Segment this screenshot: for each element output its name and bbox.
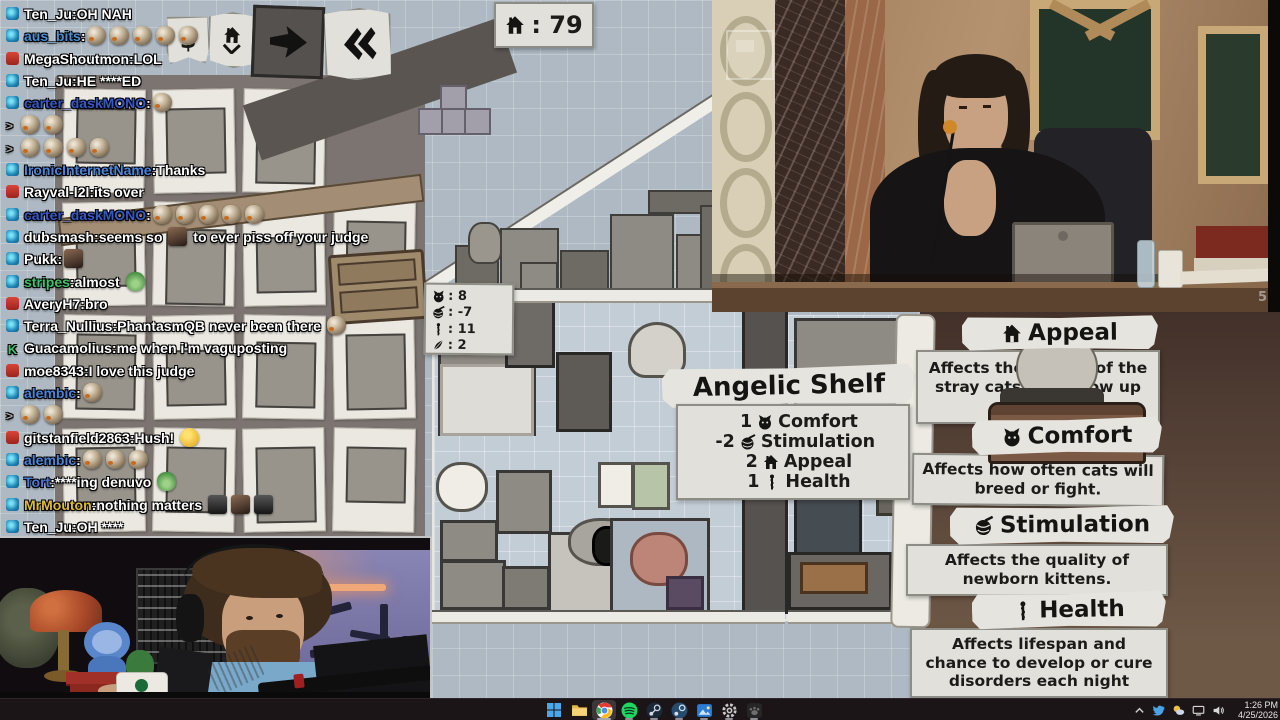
chat-username[interactable]: dubsmash bbox=[24, 229, 94, 245]
streamer-eye bbox=[246, 616, 253, 620]
chat-username[interactable]: AveryH7 bbox=[24, 296, 80, 312]
sub-badge-icon bbox=[6, 275, 19, 288]
chat-message: Ten_Ju:HE ****ED bbox=[6, 70, 436, 92]
username-separator: : bbox=[57, 251, 62, 267]
wood-drawer bbox=[800, 562, 868, 594]
windows-taskbar: 1:26 PM 4/25/2026 bbox=[0, 698, 1280, 720]
chrome-taskbar-icon[interactable] bbox=[592, 700, 616, 720]
info-panel-desc-stimulation: Affects the quality of newborn kittens. bbox=[906, 544, 1168, 596]
appeal-counter: : 79 bbox=[494, 2, 594, 48]
bird-emote-icon[interactable] bbox=[179, 26, 198, 45]
stat-row-feather: : 2 bbox=[432, 337, 506, 354]
marble-wall-panel bbox=[1030, 0, 1160, 140]
chat-username[interactable]: IronicInternetName bbox=[24, 162, 152, 178]
frog-emote-icon[interactable] bbox=[157, 472, 176, 491]
steam-taskbar-icon[interactable] bbox=[642, 700, 666, 720]
speaker-icon[interactable] bbox=[1212, 704, 1225, 717]
chat-message: Rayval-l2l:its over bbox=[6, 181, 436, 203]
room-floor bbox=[430, 610, 785, 624]
continuation-prefix: > bbox=[6, 409, 13, 423]
blue-plush-face bbox=[92, 630, 122, 654]
house-icon bbox=[763, 454, 779, 470]
mod-red-badge-icon bbox=[6, 431, 19, 444]
bird-emote-icon[interactable] bbox=[106, 450, 125, 469]
sub-badge-icon bbox=[6, 163, 19, 176]
yarn-icon bbox=[740, 434, 756, 450]
chat-message: dubsmash:seems so to ever piss off your … bbox=[6, 226, 436, 248]
chat-username[interactable]: Terra_Nullius bbox=[24, 318, 112, 334]
chat-username[interactable]: MegaShoutmon bbox=[24, 51, 129, 67]
chat-username[interactable]: Ten_Ju bbox=[24, 519, 72, 535]
chat-message: MegaShoutmon:LOL bbox=[6, 48, 436, 70]
chat-message: > bbox=[6, 404, 436, 426]
judge-camera-feed: 5 bbox=[712, 0, 1280, 312]
mod-red-badge-icon bbox=[6, 185, 19, 198]
chat-message: carter_daskMONO: bbox=[6, 92, 436, 114]
chat-message: Ten_Ju:OH NAH bbox=[6, 3, 436, 25]
lamp-stand bbox=[58, 630, 69, 674]
channel-watermark: 5 bbox=[1258, 290, 1267, 305]
hush-emote-icon[interactable] bbox=[180, 428, 199, 447]
judge-hands bbox=[944, 160, 996, 236]
bird-emote-icon[interactable] bbox=[90, 138, 109, 157]
info-panel-title-stimulation: Stimulation bbox=[950, 505, 1174, 545]
chat-username[interactable]: aus_bits bbox=[24, 28, 81, 44]
dark-emote-icon[interactable] bbox=[254, 495, 273, 514]
bird-emote-icon[interactable] bbox=[21, 138, 40, 157]
tiffany-lamp-dome bbox=[30, 590, 102, 632]
chat-message: Pukk: bbox=[6, 248, 436, 270]
photo-emote-icon[interactable] bbox=[168, 227, 187, 246]
chat-text: almost bbox=[75, 274, 124, 290]
sub-badge-icon bbox=[6, 520, 19, 533]
paw-app-taskbar-icon[interactable] bbox=[742, 700, 766, 720]
chat-username[interactable]: Tort bbox=[24, 474, 50, 490]
ivory-column bbox=[712, 0, 778, 312]
tooltip-stat-appeal: 2Appeal bbox=[678, 452, 908, 472]
appeal-counter-value: : 79 bbox=[531, 11, 582, 39]
chat-text: PhantasmQB never been there bbox=[117, 318, 325, 334]
chat-message: IronicInternetName:Thanks bbox=[6, 159, 436, 181]
boom-arm-ring bbox=[293, 674, 304, 689]
bird-emote-icon[interactable] bbox=[21, 115, 40, 134]
yarn-icon bbox=[974, 516, 994, 536]
streamer-camera-feed bbox=[0, 536, 432, 700]
sub-badge-icon bbox=[6, 498, 19, 511]
judge-hair-top bbox=[934, 54, 1018, 98]
info-panel-title-appeal: Appeal bbox=[962, 315, 1158, 351]
chat-username[interactable]: stripes bbox=[24, 274, 70, 290]
dresser bbox=[496, 470, 552, 534]
steam-2-taskbar-icon[interactable] bbox=[667, 700, 691, 720]
chat-text: Hush! bbox=[135, 430, 179, 446]
chat-text: Thanks bbox=[156, 162, 205, 178]
cup-logo bbox=[135, 679, 148, 692]
caduceus-icon bbox=[1013, 601, 1033, 621]
chat-username[interactable]: moe8343 bbox=[24, 363, 84, 379]
sub-badge-icon bbox=[6, 475, 19, 488]
bird-emote-icon[interactable] bbox=[67, 138, 86, 157]
bird-emote-icon[interactable] bbox=[110, 26, 129, 45]
info-panel-title-comfort: Comfort bbox=[972, 416, 1163, 455]
info-panel-title-health: Health bbox=[972, 590, 1167, 629]
chat-message: > bbox=[6, 114, 436, 136]
sub-badge-icon bbox=[6, 252, 19, 265]
settings-taskbar-icon[interactable] bbox=[717, 700, 741, 720]
chat-text: I love this judge bbox=[89, 363, 195, 379]
bird-emote-icon[interactable] bbox=[44, 405, 63, 424]
bird-emote-icon[interactable] bbox=[83, 450, 102, 469]
chat-message: > bbox=[6, 137, 436, 159]
chat-message: alembic: bbox=[6, 449, 436, 471]
attic-box bbox=[610, 214, 674, 294]
chat-username[interactable]: carter_daskMONO bbox=[24, 207, 146, 223]
chat-username[interactable]: Rayval-l2l bbox=[24, 184, 89, 200]
chat-username[interactable]: Ten_Ju bbox=[24, 73, 72, 89]
chat-text: its over bbox=[94, 184, 144, 200]
stream-screen: : 79 $ : 8: -7: 11: 2 Angelic Shelf 1Com… bbox=[0, 0, 1280, 720]
attic-cat bbox=[468, 222, 502, 264]
chat-username[interactable]: gitstanfield2863 bbox=[24, 430, 130, 446]
chat-message: KGuacamolius:me when i'm vaguposting bbox=[6, 337, 436, 359]
chat-message: Ten_Ju:OH **** bbox=[6, 516, 436, 538]
mod-red-badge-icon bbox=[6, 364, 19, 377]
chat-text: OH **** bbox=[77, 519, 124, 535]
mod-red-badge-icon bbox=[6, 297, 19, 310]
black-edge bbox=[1268, 0, 1280, 312]
sub-badge-icon bbox=[6, 230, 19, 243]
chat-text: ****ing denuvo bbox=[55, 474, 155, 490]
start-taskbar-icon[interactable] bbox=[542, 700, 566, 720]
box-stack bbox=[440, 520, 498, 562]
continuation-prefix: > bbox=[6, 119, 13, 133]
bird-emote-icon[interactable] bbox=[222, 205, 241, 224]
bird-emote-icon[interactable] bbox=[21, 405, 40, 424]
stat-row-health: : 11 bbox=[432, 321, 506, 338]
marble-wall-panel-2 bbox=[1198, 26, 1268, 184]
bird-emote-icon[interactable] bbox=[129, 450, 148, 469]
dark-emote-icon[interactable] bbox=[208, 495, 227, 514]
chat-message: AveryH7:bro bbox=[6, 293, 436, 315]
spotify-taskbar-icon[interactable] bbox=[617, 700, 641, 720]
tooltip-title-text: Angelic Shelf bbox=[693, 369, 886, 403]
system-tray: 1:26 PM 4/25/2026 bbox=[1134, 699, 1278, 720]
cat-sign bbox=[436, 462, 488, 512]
chat-message: moe8343:I love this judge bbox=[6, 360, 436, 382]
bird-emote-icon[interactable] bbox=[87, 26, 106, 45]
taskbar-clock[interactable]: 1:26 PM 4/25/2026 bbox=[1232, 700, 1278, 720]
chat-username[interactable]: Guacamolius bbox=[24, 340, 112, 356]
sub-badge-icon bbox=[6, 74, 19, 87]
tooltip-stat-comfort: 1Comfort bbox=[678, 412, 908, 432]
chat-message: gitstanfield2863:Hush! bbox=[6, 427, 436, 449]
marble-column bbox=[775, 0, 845, 312]
file-explorer-taskbar-icon[interactable] bbox=[567, 700, 591, 720]
chat-message: Terra_Nullius:PhantasmQB never been ther… bbox=[6, 315, 436, 337]
station-watermark bbox=[726, 30, 774, 80]
bird-emote-icon[interactable] bbox=[44, 138, 63, 157]
bird-emote-icon[interactable] bbox=[153, 205, 172, 224]
picture-frame bbox=[598, 462, 634, 508]
picture-frame-green bbox=[632, 462, 670, 510]
info-panel-desc-health: Affects lifespan and chance to develop o… bbox=[910, 628, 1168, 698]
chat-username[interactable]: alembic bbox=[24, 385, 76, 401]
chat-message: MrMouton:nothing matters bbox=[6, 494, 436, 516]
sub-badge-icon bbox=[6, 319, 19, 332]
weather-icon[interactable] bbox=[1172, 704, 1185, 717]
founder-badge-icon: K bbox=[6, 343, 19, 356]
house-icon bbox=[505, 15, 525, 35]
chat-username[interactable]: carter_daskMONO bbox=[24, 95, 146, 111]
bird-emote-icon[interactable] bbox=[133, 26, 152, 45]
cat-icon bbox=[757, 414, 773, 430]
photo-emote-icon[interactable] bbox=[231, 495, 250, 514]
photos-taskbar-icon[interactable] bbox=[692, 700, 716, 720]
bird-emote-icon[interactable] bbox=[44, 115, 63, 134]
chat-username[interactable]: MrMouton bbox=[24, 497, 92, 513]
chat-message: stripes:almost bbox=[6, 271, 436, 293]
house-icon bbox=[1002, 323, 1022, 343]
box-stack bbox=[502, 566, 550, 610]
room-stats-panel: : 8: -7: 11: 2 bbox=[424, 283, 515, 356]
bird-emote-icon[interactable] bbox=[153, 93, 172, 112]
username-separator: : bbox=[81, 28, 86, 44]
chat-username[interactable]: alembic bbox=[24, 452, 76, 468]
sub-badge-icon bbox=[6, 453, 19, 466]
bird-emote-icon[interactable] bbox=[327, 316, 346, 335]
frog-emote-icon[interactable] bbox=[126, 272, 145, 291]
tooltip-stat-stimulation: -2Stimulation bbox=[678, 432, 908, 452]
chat-username[interactable]: Pukk bbox=[24, 251, 57, 267]
chat-text: seems so bbox=[99, 229, 167, 245]
tray-expand-chevron-icon[interactable] bbox=[1134, 705, 1145, 716]
white-sheet bbox=[440, 364, 534, 436]
tooltip-body: 1Comfort-2Stimulation2Appeal1Health bbox=[676, 404, 910, 500]
display-icon[interactable] bbox=[1192, 704, 1205, 717]
box-stack bbox=[440, 560, 506, 610]
chat-text: bro bbox=[85, 296, 108, 312]
sub-badge-icon bbox=[6, 96, 19, 109]
house-icon bbox=[505, 15, 525, 35]
judge-eye bbox=[959, 106, 967, 109]
bench-front bbox=[712, 288, 1280, 312]
continuation-prefix: > bbox=[6, 142, 13, 156]
photo-emote-icon[interactable] bbox=[64, 249, 83, 268]
username-separator: : bbox=[76, 385, 81, 401]
water-bottle bbox=[1137, 240, 1155, 288]
wardrobe bbox=[556, 352, 612, 432]
sub-badge-icon bbox=[6, 29, 19, 42]
bird-emote-icon[interactable] bbox=[83, 383, 102, 402]
bird-emote-icon[interactable] bbox=[199, 205, 218, 224]
tooltip-title: Angelic Shelf bbox=[662, 363, 917, 408]
streamer-eye bbox=[276, 614, 283, 618]
chat-message: Tort:****ing denuvo bbox=[6, 471, 436, 493]
tooltip-stat-health: 1Health bbox=[678, 472, 908, 492]
chat-username[interactable]: Ten_Ju bbox=[24, 6, 72, 22]
chat-text: LOL bbox=[134, 51, 162, 67]
chat-message: aus_bits: bbox=[6, 25, 436, 47]
tank-rock bbox=[666, 576, 704, 610]
stat-row-cat: : 8 bbox=[432, 288, 506, 305]
chat-text: HE ****ED bbox=[77, 73, 142, 89]
chat-message: carter_daskMONO: bbox=[6, 204, 436, 226]
chat-text: to ever piss off your judge bbox=[189, 229, 368, 245]
caduceus-icon bbox=[764, 474, 780, 490]
username-separator: : bbox=[146, 207, 151, 223]
headphone-earcup bbox=[176, 594, 204, 642]
judge-eye bbox=[983, 105, 991, 108]
username-separator: : bbox=[146, 95, 151, 111]
mod-red-badge-icon bbox=[6, 52, 19, 65]
sub-badge-icon bbox=[6, 208, 19, 221]
stat-row-yarn: : -7 bbox=[432, 304, 506, 321]
bird-emote-icon[interactable] bbox=[245, 205, 264, 224]
sub-badge-icon bbox=[6, 386, 19, 399]
twitter-icon[interactable] bbox=[1152, 704, 1165, 717]
sub-badge-icon bbox=[6, 7, 19, 20]
chat-text: nothing matters bbox=[96, 497, 206, 513]
bird-emote-icon[interactable] bbox=[156, 26, 175, 45]
chat-text: OH NAH bbox=[77, 6, 132, 22]
cat-icon bbox=[1001, 427, 1021, 447]
microphone-windscreen bbox=[943, 120, 957, 134]
chat-text: me when i'm vaguposting bbox=[117, 340, 288, 356]
username-separator: : bbox=[76, 452, 81, 468]
chat-message: alembic: bbox=[6, 382, 436, 404]
chat-overlay: Ten_Ju:OH NAHaus_bits:MegaShoutmon:LOLTe… bbox=[6, 3, 436, 538]
bird-emote-icon[interactable] bbox=[176, 205, 195, 224]
